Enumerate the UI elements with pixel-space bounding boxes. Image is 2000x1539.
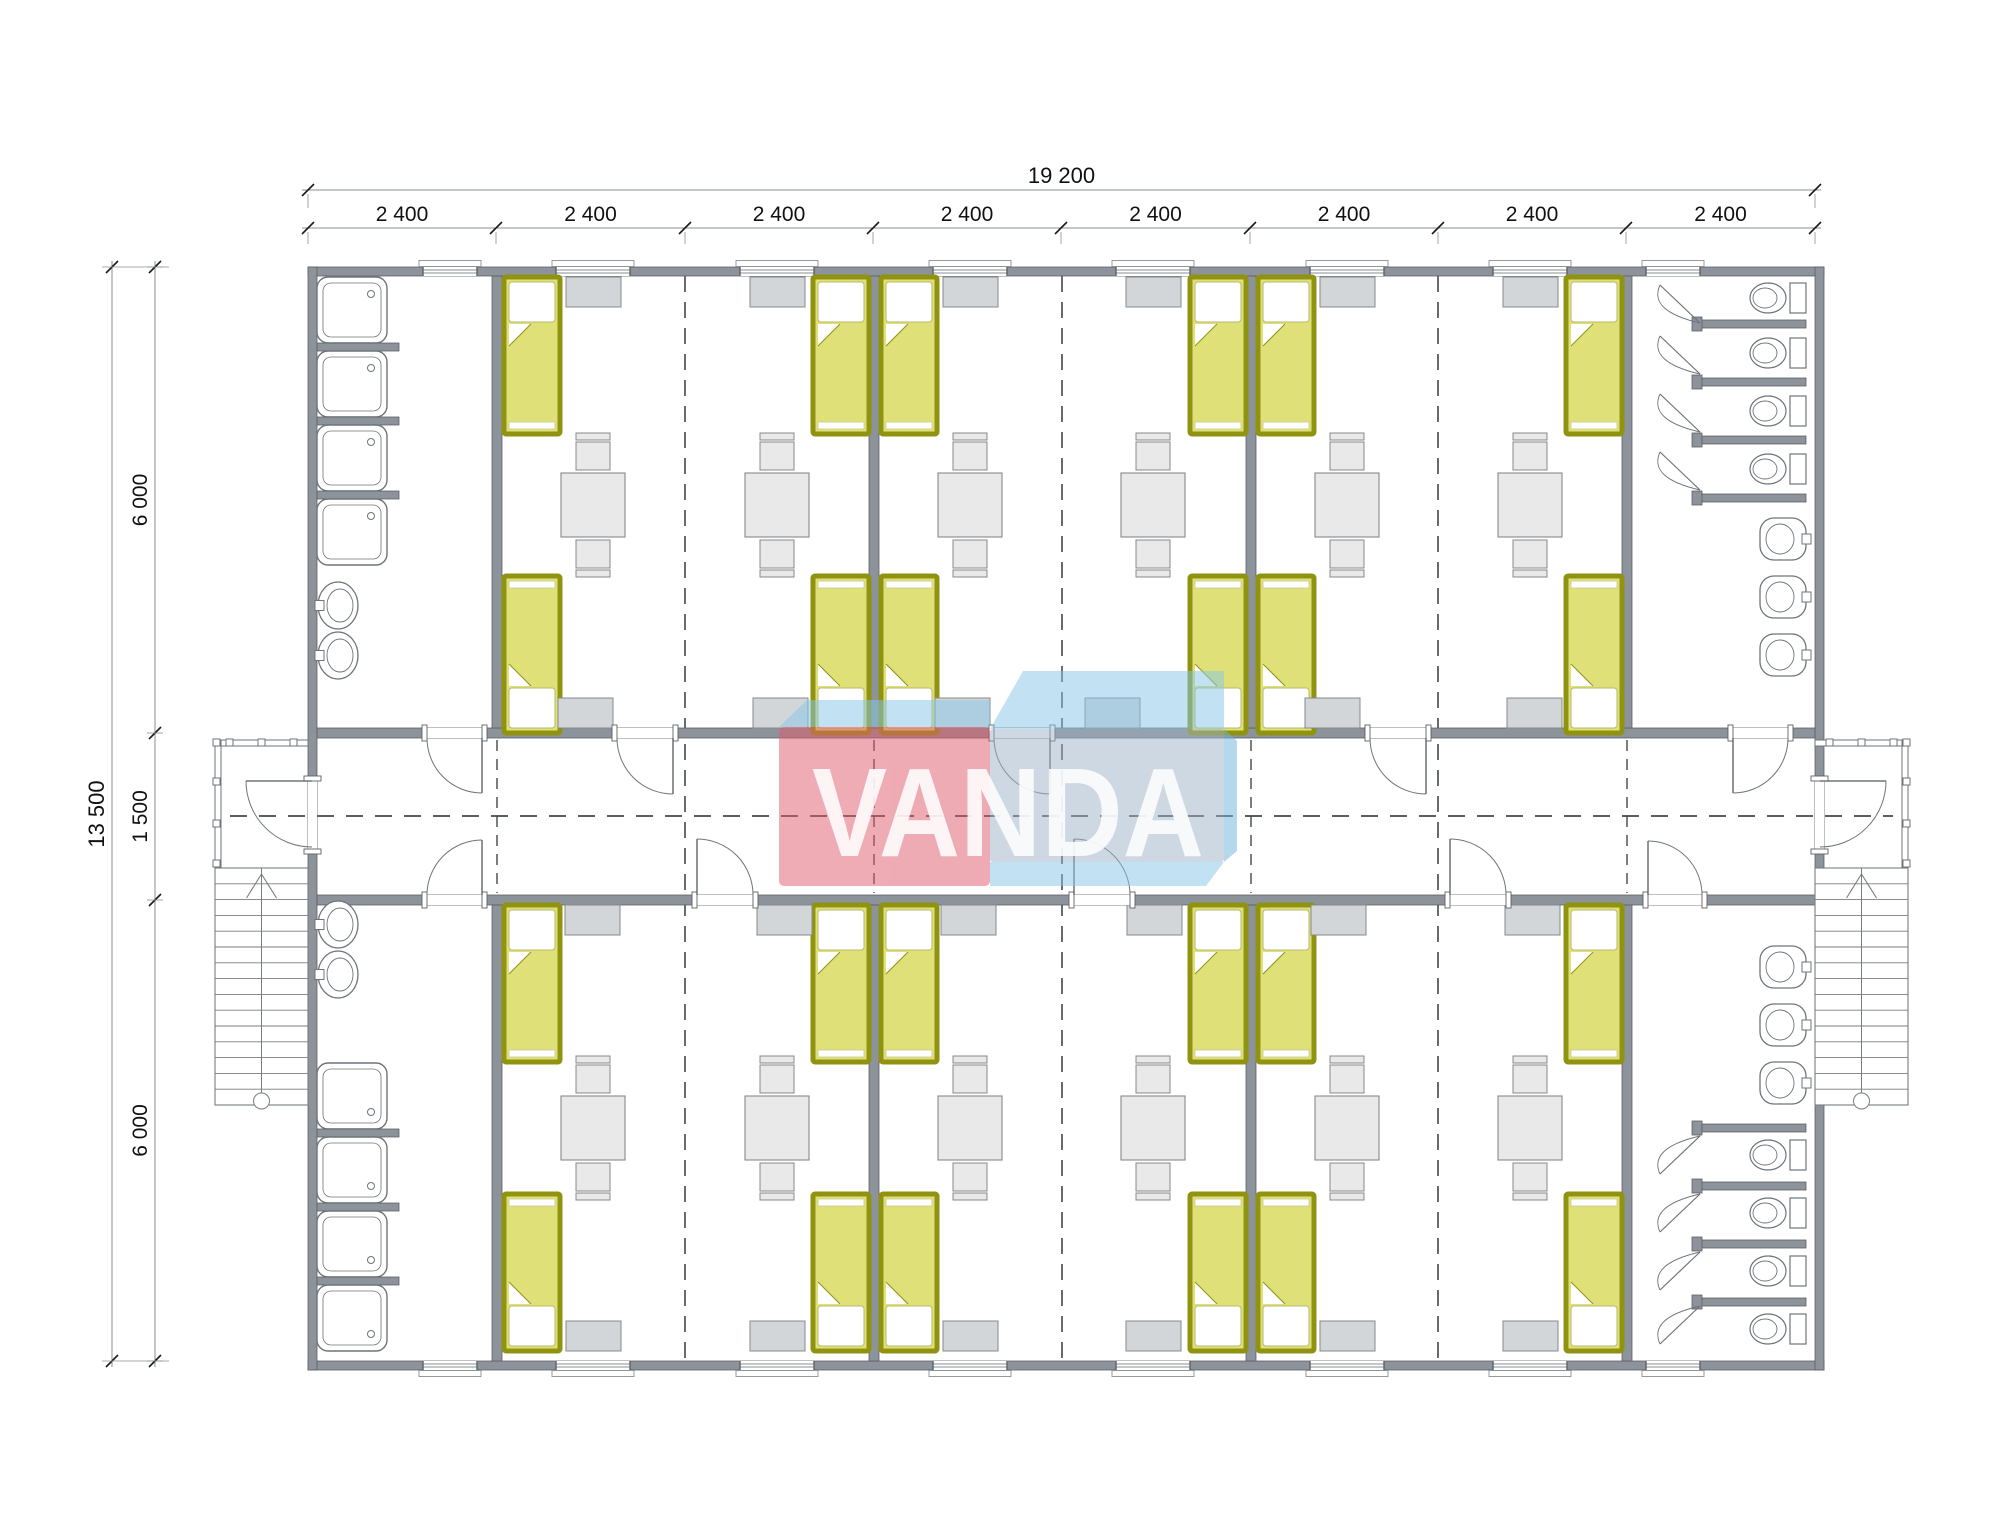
shower-tray	[317, 1285, 387, 1351]
watermark-text: VANDA	[812, 742, 1204, 883]
wardrobe	[566, 1321, 621, 1351]
bed-pillow	[818, 910, 864, 950]
bed-footboard	[1263, 1199, 1309, 1206]
toilet-bowl	[1750, 283, 1786, 313]
wardrobe	[565, 905, 620, 935]
table	[1498, 1096, 1562, 1160]
shower-tray	[317, 425, 387, 491]
chair-backrest	[1513, 433, 1547, 440]
window-sill	[1306, 261, 1388, 267]
shower-drain	[368, 291, 375, 298]
door-jamb	[1506, 892, 1511, 908]
chair-seat	[760, 1065, 794, 1093]
chair-backrest	[576, 1193, 610, 1200]
dim-label-left-segment: 6 000	[129, 474, 152, 527]
bed-footboard	[509, 422, 555, 429]
window-opening	[1493, 267, 1567, 276]
shower-tray	[317, 1063, 387, 1129]
chair-backrest	[1513, 570, 1547, 577]
toilet	[1750, 1256, 1806, 1286]
window-sill	[419, 261, 481, 267]
toilet	[1750, 1314, 1806, 1344]
window-sill	[736, 261, 818, 267]
dim-label-top-segment: 2 400	[941, 203, 994, 226]
chair-backrest	[760, 1193, 794, 1200]
chair-backrest	[1330, 433, 1364, 440]
wardrobe	[566, 277, 621, 307]
bed-pillow	[818, 282, 864, 322]
wardrobe	[558, 698, 613, 728]
dim-label-top-segment: 2 400	[376, 203, 429, 226]
table	[938, 473, 1002, 537]
bed-footboard	[1263, 581, 1309, 588]
railing-post	[1858, 739, 1865, 746]
bed-pillow	[509, 910, 555, 950]
bed-footboard	[818, 1050, 864, 1057]
chair-seat	[1513, 1163, 1547, 1191]
chair-backrest	[1136, 1193, 1170, 1200]
door-opening	[697, 895, 753, 905]
dim-label-left-segment: 1 500	[129, 790, 152, 843]
bed-pillow	[509, 282, 555, 322]
stall-door-post	[1692, 491, 1702, 505]
window-sill	[419, 1371, 481, 1377]
chair-backrest	[576, 433, 610, 440]
window-opening	[933, 267, 1007, 276]
wardrobe	[757, 905, 812, 935]
window-opening	[556, 1361, 630, 1370]
table	[1498, 473, 1562, 537]
chair-backrest	[953, 570, 987, 577]
wardrobe	[1320, 1321, 1375, 1351]
window-sill	[736, 1371, 818, 1377]
window-opening	[423, 267, 477, 276]
shower-drain	[368, 1109, 375, 1116]
window-opening	[423, 1361, 477, 1370]
shower-drain	[368, 1331, 375, 1338]
bed-footboard	[818, 1199, 864, 1206]
shower-drain	[368, 1183, 375, 1190]
railing-post	[1890, 739, 1897, 746]
door-jamb	[1788, 725, 1793, 741]
watermark-box-top-face	[779, 700, 990, 727]
toilet-tank	[1790, 338, 1806, 368]
bed	[504, 1194, 560, 1351]
bed-footboard	[1195, 581, 1241, 588]
bed	[881, 277, 937, 434]
bed-footboard	[1195, 422, 1241, 429]
stall-wall	[1700, 436, 1806, 444]
sink-tap	[315, 601, 324, 611]
sink	[1760, 946, 1811, 988]
railing-post	[213, 820, 220, 827]
toilet-bowl	[1750, 1140, 1786, 1170]
door-jamb	[482, 892, 487, 908]
toilet	[1750, 338, 1806, 368]
wardrobe	[1127, 905, 1182, 935]
chair-seat	[760, 540, 794, 568]
toilet	[1750, 283, 1806, 313]
railing-post	[290, 739, 297, 746]
table	[938, 1096, 1002, 1160]
stall-door-post	[1692, 1121, 1702, 1135]
bed	[504, 905, 560, 1062]
window-sill	[1642, 261, 1704, 267]
partition-wall	[492, 905, 502, 1361]
sink-tap	[1802, 650, 1811, 660]
bed-footboard	[1263, 1050, 1309, 1057]
chair-seat	[953, 442, 987, 470]
wardrobe	[750, 277, 805, 307]
chair-backrest	[1513, 1193, 1547, 1200]
bed-footboard	[818, 581, 864, 588]
sink	[1760, 1062, 1811, 1104]
dim-label-top-segment: 2 400	[1506, 203, 1559, 226]
door-jamb	[673, 725, 678, 741]
door-opening	[1733, 728, 1788, 738]
chair-seat	[953, 1065, 987, 1093]
bed-footboard	[1571, 422, 1617, 429]
bed	[1566, 277, 1622, 434]
window-opening	[933, 1361, 1007, 1370]
chair-seat	[1136, 540, 1170, 568]
bed-pillow	[509, 1306, 555, 1346]
bed-footboard	[1571, 581, 1617, 588]
exterior-wall-bottom	[308, 1361, 1824, 1370]
shower-drain	[368, 439, 375, 446]
door-jamb	[304, 849, 321, 854]
chair-backrest	[1330, 1193, 1364, 1200]
chair-backrest	[1136, 570, 1170, 577]
window-opening	[1646, 267, 1700, 276]
shower-divider-wall	[317, 417, 399, 425]
railing-post	[1903, 820, 1910, 827]
door-opening	[1370, 728, 1426, 738]
table	[1121, 1096, 1185, 1160]
railing-post	[213, 860, 220, 867]
bed-pillow	[1571, 1306, 1617, 1346]
window-sill	[1112, 1371, 1194, 1377]
table	[745, 473, 809, 537]
chair-seat	[576, 1065, 610, 1093]
dim-label-top-total: 19 200	[1028, 163, 1095, 188]
sink-tap	[315, 651, 324, 661]
shower-tray	[317, 351, 387, 417]
chair-backrest	[953, 433, 987, 440]
table	[745, 1096, 809, 1160]
wardrobe	[943, 277, 998, 307]
door-jamb	[422, 725, 427, 741]
bed-footboard	[1263, 422, 1309, 429]
chair-backrest	[1513, 1056, 1547, 1063]
window-sill	[1489, 1371, 1571, 1377]
stall-door-post	[1692, 1237, 1702, 1251]
bed	[504, 576, 560, 733]
wardrobe	[1305, 698, 1360, 728]
chair-backrest	[576, 1056, 610, 1063]
window-opening	[1116, 1361, 1190, 1370]
bed	[1566, 905, 1622, 1062]
chair-seat	[1136, 1163, 1170, 1191]
door-jamb	[1811, 849, 1828, 854]
bed-footboard	[1571, 1199, 1617, 1206]
door-jamb	[1702, 892, 1707, 908]
bed	[881, 905, 937, 1062]
door-jamb	[1426, 725, 1431, 741]
sink-tap	[315, 920, 324, 930]
dim-label-top-segment: 2 400	[753, 203, 806, 226]
bed-pillow	[1263, 910, 1309, 950]
bed-pillow	[818, 1306, 864, 1346]
toilet-tank	[1790, 396, 1806, 426]
railing-post	[226, 739, 233, 746]
chair-seat	[1136, 442, 1170, 470]
bed-footboard	[509, 1199, 555, 1206]
table	[561, 1096, 625, 1160]
wardrobe	[1311, 905, 1366, 935]
bed	[1190, 277, 1246, 434]
chair-seat	[953, 540, 987, 568]
sink	[1760, 1004, 1811, 1046]
stall-door-post	[1692, 317, 1702, 331]
bed-pillow	[1195, 1306, 1241, 1346]
chair-seat	[576, 540, 610, 568]
bed-footboard	[886, 422, 932, 429]
door-jamb	[1365, 725, 1370, 741]
table	[1121, 473, 1185, 537]
chair-seat	[1513, 540, 1547, 568]
window-opening	[740, 267, 814, 276]
shower-divider-wall	[317, 491, 399, 499]
toilet	[1750, 396, 1806, 426]
window-sill	[1112, 261, 1194, 267]
window-opening	[1646, 1361, 1700, 1370]
door-opening	[1648, 895, 1702, 905]
chair-backrest	[953, 1193, 987, 1200]
railing-post	[1903, 739, 1910, 746]
window-opening	[1310, 267, 1384, 276]
bed-pillow	[886, 282, 932, 322]
window-opening	[556, 267, 630, 276]
floor-plan-page: 19 2002 4002 4002 4002 4002 4002 4002 40…	[0, 0, 2000, 1539]
window-sill	[1642, 1371, 1704, 1377]
bed-footboard	[1195, 1199, 1241, 1206]
window-sill	[929, 1371, 1011, 1377]
stall-wall	[1700, 1240, 1806, 1248]
chair-seat	[1330, 540, 1364, 568]
chair-backrest	[1136, 1056, 1170, 1063]
bed-pillow	[886, 1306, 932, 1346]
toilet-tank	[1790, 283, 1806, 313]
chair-seat	[953, 1163, 987, 1191]
door-opening	[427, 728, 482, 738]
dim-label-top-segment: 2 400	[1129, 203, 1182, 226]
door-opening	[1450, 895, 1506, 905]
partition-wall	[492, 276, 502, 728]
bed-footboard	[1571, 1050, 1617, 1057]
stall-wall	[1700, 1124, 1806, 1132]
porch-railing	[1902, 740, 1908, 868]
door-jamb	[1069, 892, 1074, 908]
railing-post	[1903, 860, 1910, 867]
stall-wall	[1700, 320, 1806, 328]
shower-drain	[368, 513, 375, 520]
stall-door-post	[1692, 1179, 1702, 1193]
dim-label-left-total: 13 500	[84, 780, 109, 847]
chair-backrest	[953, 1056, 987, 1063]
stall-wall	[1700, 1182, 1806, 1190]
toilet-bowl	[1750, 454, 1786, 484]
window-opening	[740, 1361, 814, 1370]
toilet-bowl	[1750, 1256, 1786, 1286]
chair-seat	[760, 1163, 794, 1191]
bed-footboard	[886, 1199, 932, 1206]
door-opening	[617, 728, 673, 738]
dim-label-left-segment: 6 000	[129, 1104, 152, 1157]
bed-footboard	[886, 581, 932, 588]
door-jamb	[1728, 725, 1733, 741]
door-jamb	[304, 776, 321, 781]
bed-pillow	[1195, 282, 1241, 322]
shower-tray	[317, 1211, 387, 1277]
wardrobe	[750, 1321, 805, 1351]
bed-pillow	[1195, 910, 1241, 950]
door-opening	[308, 781, 317, 849]
table	[561, 473, 625, 537]
railing-post	[213, 778, 220, 785]
dim-label-top-segment: 2 400	[564, 203, 617, 226]
chair-seat	[760, 442, 794, 470]
door-opening	[1815, 781, 1824, 849]
bed-pillow	[1571, 688, 1617, 728]
window-opening	[1493, 1361, 1567, 1370]
door-jamb	[753, 892, 758, 908]
window-sill	[929, 261, 1011, 267]
shower-divider-wall	[317, 343, 399, 351]
bed-pillow	[1263, 1306, 1309, 1346]
window-sill	[552, 261, 634, 267]
watermark-box-top-face	[990, 671, 1224, 729]
chair-backrest	[1330, 570, 1364, 577]
chair-seat	[1330, 1065, 1364, 1093]
toilet-bowl	[1750, 1198, 1786, 1228]
bed	[1566, 1194, 1622, 1351]
chair-seat	[1513, 442, 1547, 470]
door-jamb	[612, 725, 617, 741]
bed-pillow	[1263, 282, 1309, 322]
chair-backrest	[760, 570, 794, 577]
toilet-bowl	[1750, 1314, 1786, 1344]
wardrobe	[1505, 905, 1560, 935]
stall-wall	[1700, 378, 1806, 386]
wardrobe	[943, 1321, 998, 1351]
door-jamb	[1130, 892, 1135, 908]
bed-pillow	[1263, 688, 1309, 728]
door-jamb	[422, 892, 427, 908]
bed-footboard	[509, 1050, 555, 1057]
sink-tap	[1802, 962, 1811, 972]
shower-tray	[317, 1137, 387, 1203]
shower-divider-wall	[317, 1277, 399, 1285]
chair-backrest	[1136, 433, 1170, 440]
door-jamb	[1445, 892, 1450, 908]
sink	[1760, 518, 1811, 560]
bed	[813, 1194, 869, 1351]
chair-seat	[576, 442, 610, 470]
sink-tap	[315, 970, 324, 980]
stair-newel-circle	[1854, 1093, 1870, 1109]
stall-wall	[1700, 1298, 1806, 1306]
wardrobe	[1320, 277, 1375, 307]
door-jamb	[1643, 892, 1648, 908]
toilet	[1750, 1140, 1806, 1170]
bed	[1566, 576, 1622, 733]
window-opening	[1116, 267, 1190, 276]
bed	[1190, 1194, 1246, 1351]
chair-backrest	[760, 1056, 794, 1063]
chair-backrest	[760, 433, 794, 440]
toilet-tank	[1790, 1198, 1806, 1228]
porch-railing	[215, 740, 221, 868]
door-jamb	[482, 725, 487, 741]
bed	[1258, 277, 1314, 434]
shower-drain	[368, 1257, 375, 1264]
door-opening	[427, 895, 482, 905]
shower-divider-wall	[317, 1203, 399, 1211]
door-jamb	[1811, 776, 1828, 781]
sink-tap	[1802, 1078, 1811, 1088]
window-opening	[1310, 1361, 1384, 1370]
chair-seat	[1330, 442, 1364, 470]
bed	[1190, 905, 1246, 1062]
door-opening	[1074, 895, 1130, 905]
sink-tap	[1802, 534, 1811, 544]
chair-seat	[1513, 1065, 1547, 1093]
sink-tap	[1802, 592, 1811, 602]
stair-newel-circle	[254, 1093, 270, 1109]
wardrobe	[1503, 277, 1558, 307]
chair-backrest	[1330, 1056, 1364, 1063]
toilet-tank	[1790, 454, 1806, 484]
wardrobe	[1126, 1321, 1181, 1351]
door-jamb	[692, 892, 697, 908]
toilet-tank	[1790, 1140, 1806, 1170]
railing-post	[1826, 739, 1833, 746]
wardrobe	[941, 905, 996, 935]
bed-pillow	[1571, 910, 1617, 950]
shower-tray	[317, 499, 387, 565]
toilet	[1750, 454, 1806, 484]
window-sill	[1306, 1371, 1388, 1377]
stall-door-post	[1692, 433, 1702, 447]
bed-pillow	[509, 688, 555, 728]
watermark-box-edge	[1224, 729, 1237, 862]
table	[1315, 1096, 1379, 1160]
bed	[813, 277, 869, 434]
sink	[1760, 634, 1811, 676]
wardrobe	[1126, 277, 1181, 307]
toilet-bowl	[1750, 396, 1786, 426]
window-sill	[552, 1371, 634, 1377]
bed	[881, 1194, 937, 1351]
bed	[504, 277, 560, 434]
wardrobe	[1503, 1321, 1558, 1351]
toilet-tank	[1790, 1314, 1806, 1344]
dim-label-top-segment: 2 400	[1694, 203, 1747, 226]
chair-backrest	[576, 570, 610, 577]
window-sill	[1489, 261, 1571, 267]
bed-footboard	[886, 1050, 932, 1057]
